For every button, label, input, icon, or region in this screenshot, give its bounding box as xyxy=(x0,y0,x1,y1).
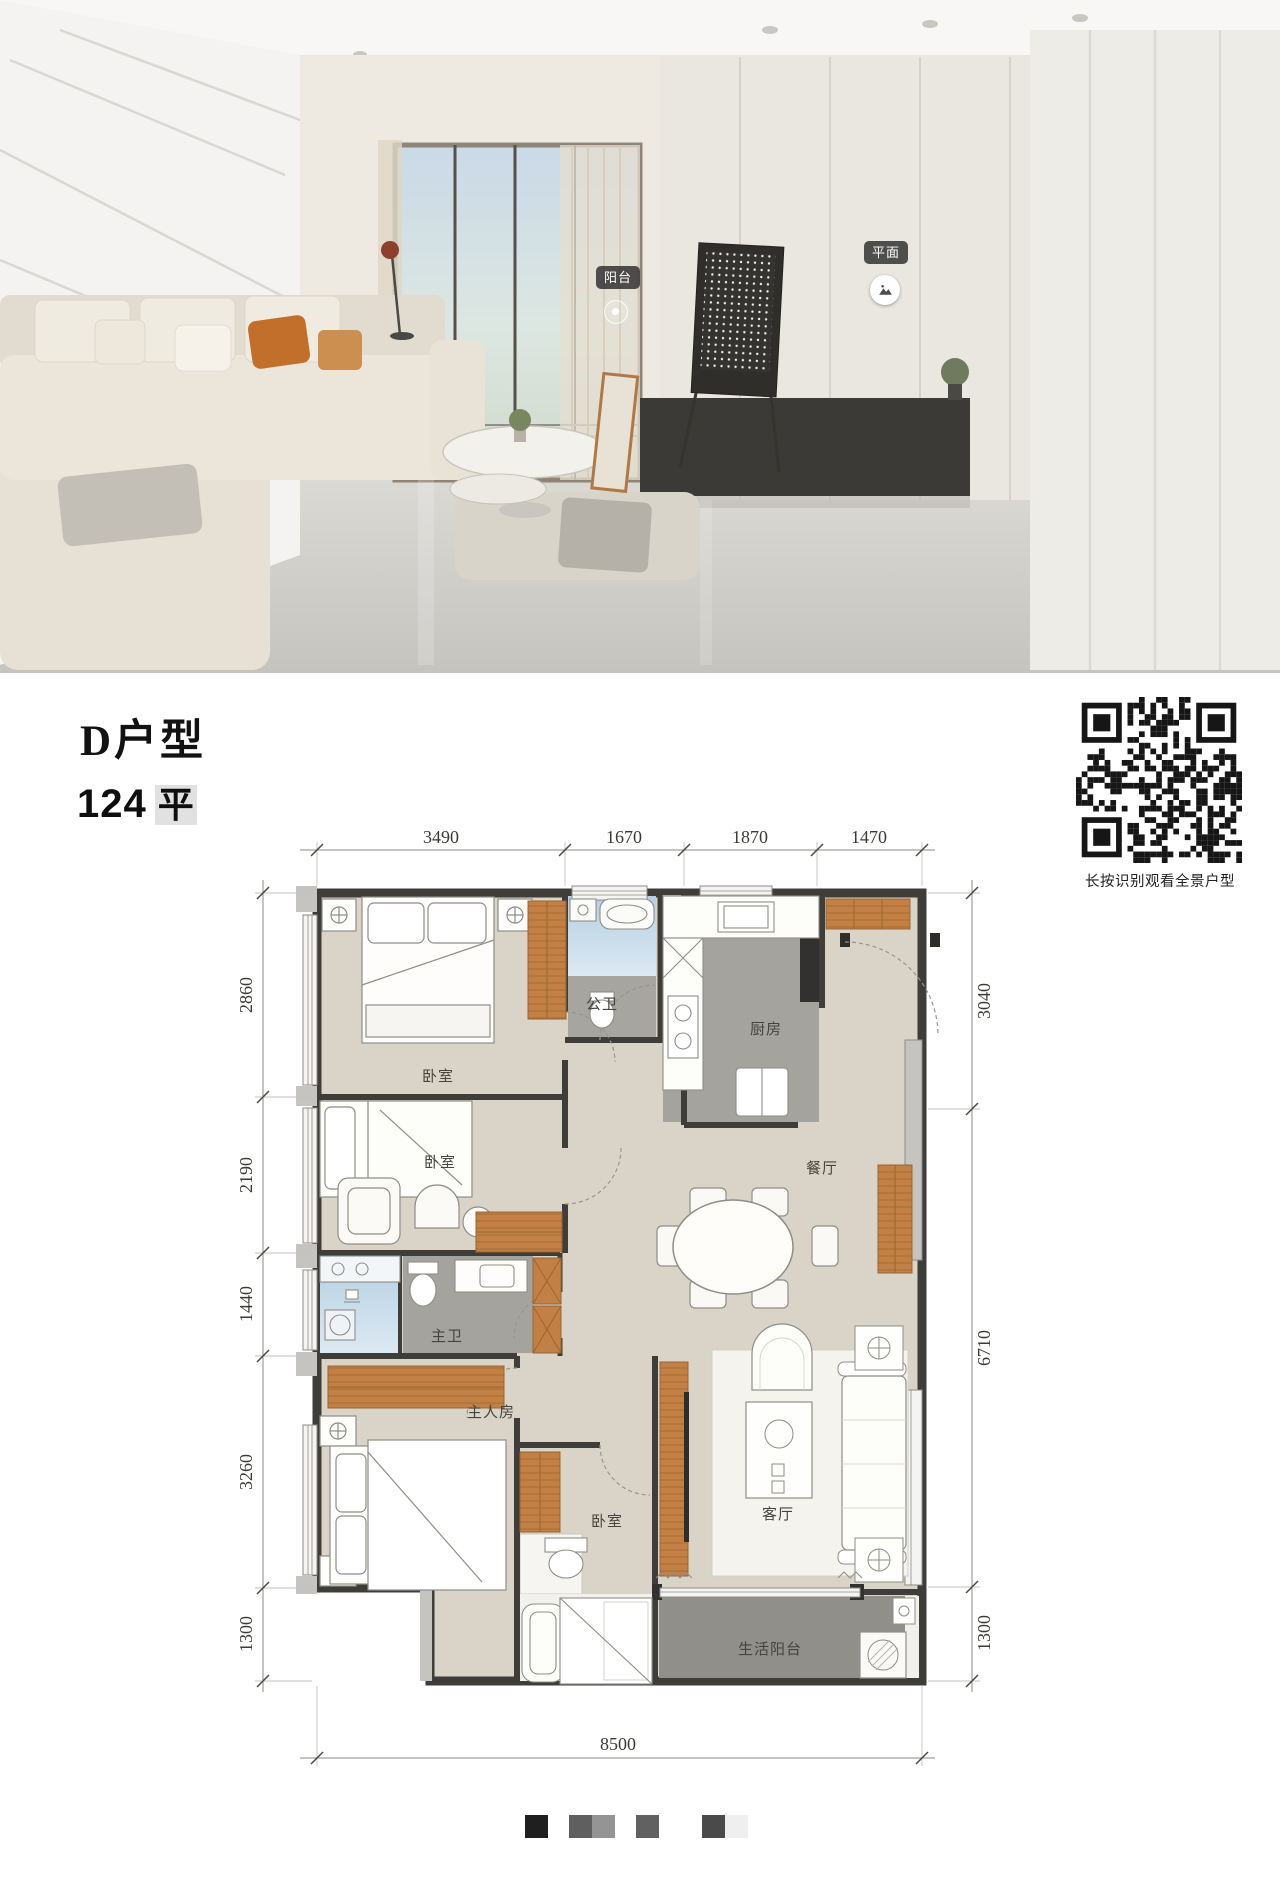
page: 卧室 公卫 厨房 餐厅 卧室 主卫 主人房 卧室 客厅 生活阳台 xyxy=(0,0,1280,1880)
page-title: D户型 xyxy=(80,706,206,768)
balcony-tag-label: 阳台 xyxy=(604,270,632,285)
room-label: 厨房 xyxy=(750,1021,782,1038)
dim-top: 1670 xyxy=(606,827,642,847)
dim-left: 2860 xyxy=(236,977,256,1013)
master-bath-cabinet xyxy=(533,1258,561,1353)
bedroom2-wardrobe xyxy=(476,1212,562,1252)
room-label: 餐厅 xyxy=(806,1160,838,1177)
dim-right: 3040 xyxy=(974,983,994,1019)
room-label: 主人房 xyxy=(467,1404,515,1421)
dining-cabinet xyxy=(878,1165,912,1273)
room-label: 卧室 xyxy=(424,1154,456,1171)
color-swatch xyxy=(702,1815,748,1838)
qr-code[interactable] xyxy=(1076,697,1242,863)
dim-top: 1470 xyxy=(851,827,887,847)
master-wardrobe xyxy=(328,1366,504,1408)
color-swatch xyxy=(525,1815,548,1838)
room-label: 生活阳台 xyxy=(738,1641,802,1658)
plan-tag[interactable]: 平面 xyxy=(864,241,908,264)
qr-code-image xyxy=(1076,697,1242,863)
dim-left: 1300 xyxy=(236,1616,256,1652)
room-label: 公卫 xyxy=(586,997,618,1013)
dim-top: 1870 xyxy=(732,827,768,847)
bench xyxy=(455,492,700,580)
page-swatches xyxy=(525,1815,748,1838)
dim-right: 6710 xyxy=(974,1330,994,1366)
bedroom3-wardrobe xyxy=(520,1452,560,1532)
qr-caption: 长按识别观看全景户型 xyxy=(1076,870,1244,891)
area-value: 124 xyxy=(77,782,147,826)
dim-bottom: 8500 xyxy=(600,1734,636,1754)
plan-tag-label: 平面 xyxy=(872,245,900,260)
dim-right: 1300 xyxy=(974,1615,994,1651)
balcony-hotspot[interactable] xyxy=(604,300,628,324)
color-swatch xyxy=(636,1815,659,1838)
tv-console xyxy=(640,398,970,496)
unit-area: 124平 xyxy=(77,776,197,828)
dim-left: 1440 xyxy=(236,1286,256,1322)
hero-photo xyxy=(0,0,1280,673)
area-unit: 平 xyxy=(155,785,197,825)
bedroom1-wardrobe xyxy=(528,901,566,1019)
color-swatch xyxy=(569,1815,615,1838)
floor-plan: 卧室 公卫 厨房 餐厅 卧室 主卫 主人房 卧室 客厅 生活阳台 xyxy=(236,827,994,1766)
room-label: 客厅 xyxy=(762,1506,794,1523)
dim-left: 3260 xyxy=(236,1454,256,1490)
dim-left: 2190 xyxy=(236,1157,256,1193)
room-label: 卧室 xyxy=(422,1068,454,1085)
photo-icon xyxy=(877,282,894,299)
dim-top: 3490 xyxy=(423,827,459,847)
balcony-tag[interactable]: 阳台 xyxy=(596,266,640,289)
plant xyxy=(941,358,969,386)
entry-cabinet xyxy=(826,899,910,929)
master-bed xyxy=(320,1416,506,1590)
plan-hotspot[interactable] xyxy=(870,275,900,305)
room-label: 主卫 xyxy=(431,1328,463,1345)
qr-block: 长按识别观看全景户型 xyxy=(1076,697,1244,891)
room-label: 卧室 xyxy=(591,1513,623,1530)
